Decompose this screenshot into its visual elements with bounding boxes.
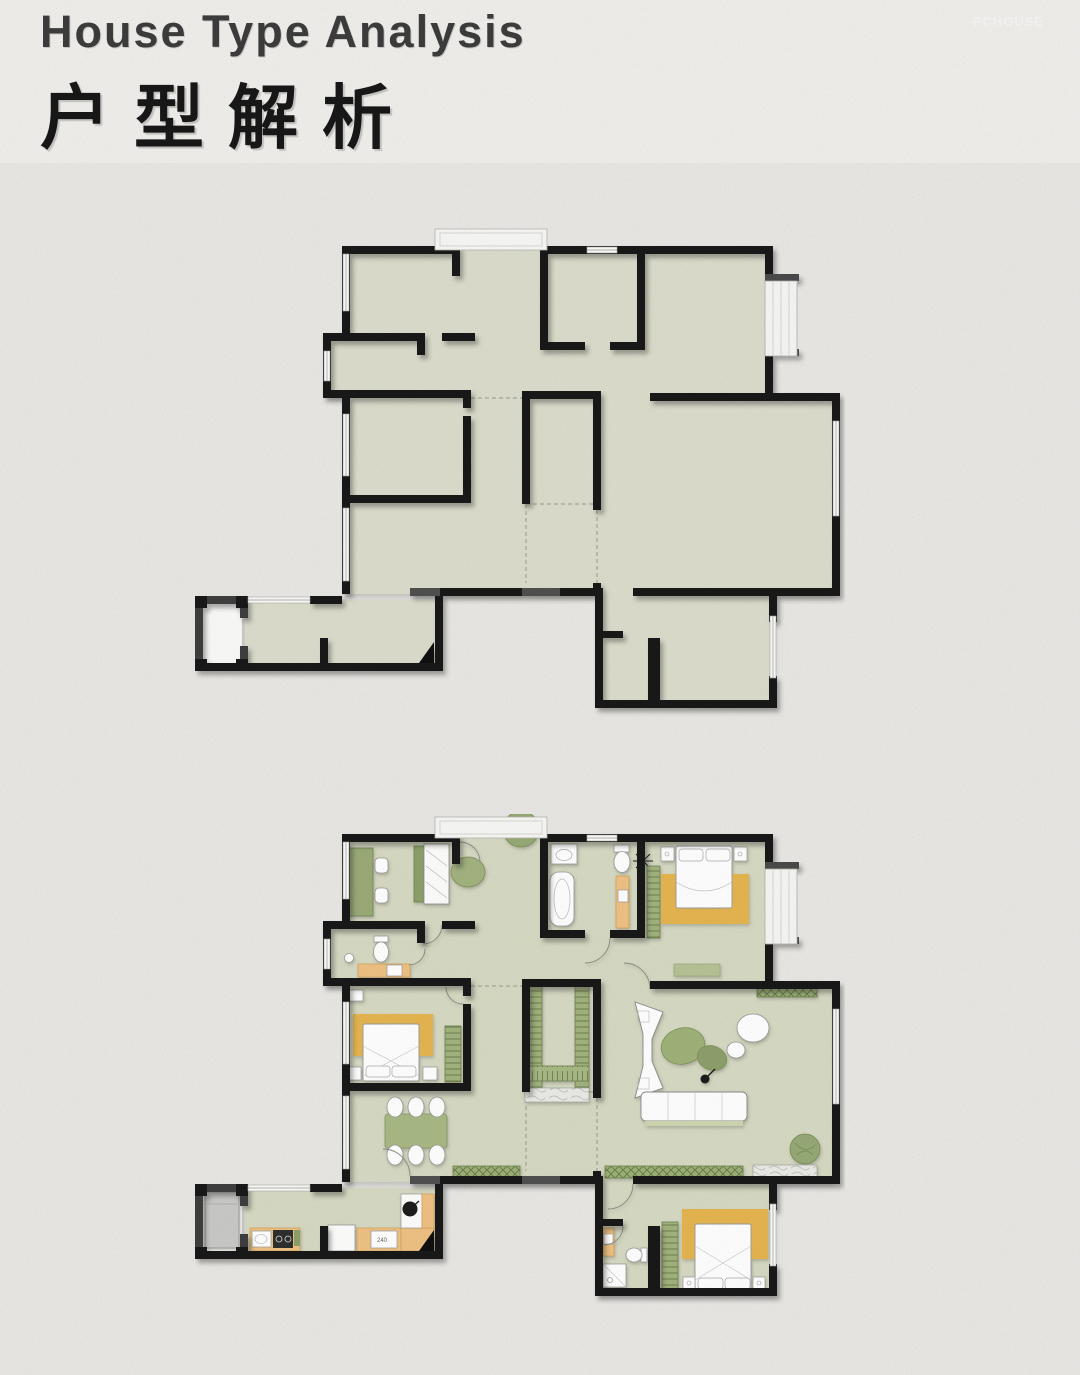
- wall: [442, 333, 475, 341]
- wall: [522, 979, 530, 1092]
- oven-label: 240: [377, 1238, 388, 1244]
- wall: [323, 921, 425, 929]
- wall: [595, 1219, 623, 1226]
- wall: [440, 1176, 522, 1184]
- chair: [408, 1097, 424, 1117]
- wall: [769, 676, 777, 708]
- toilet-tank: [374, 936, 388, 942]
- shelf: [414, 846, 424, 902]
- bench: [674, 964, 720, 976]
- wall: [593, 979, 601, 1098]
- wall: [765, 862, 799, 869]
- nightstand: [423, 1067, 437, 1080]
- wall: [463, 986, 471, 996]
- wall: [323, 333, 425, 341]
- wall: [410, 1176, 440, 1184]
- ottoman: [737, 1014, 769, 1042]
- wall: [633, 588, 743, 596]
- original-floor-plan: [195, 226, 845, 726]
- wall: [769, 1264, 777, 1296]
- nightstand: [753, 1277, 765, 1289]
- sink: [551, 844, 577, 864]
- wall: [417, 333, 425, 355]
- wall: [540, 834, 548, 938]
- toilet-tank: [614, 845, 629, 852]
- wall: [342, 1083, 470, 1091]
- pillow: [392, 1066, 416, 1077]
- floor-corridor: [245, 600, 437, 666]
- wall: [195, 1251, 442, 1259]
- wall: [595, 588, 603, 708]
- wall: [540, 246, 548, 350]
- wall: [633, 1176, 743, 1184]
- wall: [650, 981, 840, 989]
- counter: [422, 1194, 434, 1228]
- page-title-english: House Type Analysis: [40, 6, 526, 58]
- wall: [320, 638, 328, 671]
- sink: [345, 954, 354, 963]
- pillow: [706, 849, 730, 861]
- wall: [650, 393, 840, 401]
- floors: [201, 248, 832, 704]
- wall: [522, 979, 601, 987]
- wall: [648, 1226, 660, 1294]
- bathtub: [550, 872, 574, 926]
- wall: [463, 416, 471, 503]
- sofa-base: [645, 1121, 743, 1126]
- wall: [435, 1184, 443, 1259]
- vanity-sink: [618, 890, 628, 902]
- wall: [593, 391, 601, 510]
- nightstand: [661, 847, 674, 861]
- wall: [743, 1176, 840, 1184]
- pillow: [725, 1278, 750, 1289]
- plant: [790, 1134, 820, 1164]
- wall: [417, 921, 425, 943]
- wall: [320, 1226, 328, 1259]
- toilet: [614, 852, 630, 873]
- nightstand: [683, 1277, 695, 1289]
- wall: [743, 588, 840, 596]
- wall: [522, 391, 601, 399]
- wall: [410, 588, 440, 596]
- chair: [387, 1097, 403, 1117]
- wall: [195, 663, 442, 671]
- refrigerator: [205, 1192, 239, 1248]
- wall: [342, 495, 470, 503]
- balcony: [435, 229, 547, 250]
- wall: [452, 246, 460, 276]
- floor-powder-room: [326, 336, 417, 396]
- floor-bedroom-south: [598, 594, 773, 704]
- ottoman: [727, 1042, 745, 1058]
- wall: [236, 1184, 248, 1196]
- dining-table: [385, 1114, 447, 1148]
- vanity-sink: [387, 965, 402, 976]
- wall: [593, 1171, 601, 1184]
- wall: [545, 834, 773, 842]
- chair: [375, 858, 388, 873]
- pillow: [679, 849, 703, 861]
- wall: [595, 700, 777, 708]
- chair: [429, 1145, 445, 1165]
- furnished-floor-plan: 240: [195, 814, 845, 1314]
- wall: [637, 834, 645, 938]
- wall: [440, 588, 522, 596]
- wall: [595, 1288, 777, 1296]
- watermark: PCHOUSE: [973, 14, 1044, 29]
- wall: [323, 978, 471, 986]
- threshold: [525, 1088, 589, 1102]
- chair: [408, 1145, 424, 1165]
- page: { "page": { "title_en": "House Type Anal…: [0, 0, 1080, 1375]
- wall: [540, 342, 585, 350]
- cutting-board: [294, 1230, 300, 1246]
- desk: [347, 848, 373, 916]
- wall: [452, 834, 460, 864]
- wall: [595, 631, 623, 638]
- pillow: [698, 1278, 723, 1289]
- wall: [442, 921, 475, 929]
- wall: [545, 246, 773, 254]
- page-title-chinese: 户型解析: [40, 62, 416, 163]
- wall: [463, 398, 471, 408]
- balcony: [435, 817, 547, 838]
- toilet: [626, 1248, 642, 1262]
- wall: [540, 930, 585, 938]
- wall: [195, 1184, 207, 1196]
- wardrobe: [445, 1026, 461, 1082]
- toilet: [374, 942, 389, 962]
- wall: [522, 1176, 560, 1184]
- chair: [375, 888, 388, 903]
- wardrobe: [647, 866, 660, 938]
- cabinet: [328, 1225, 355, 1251]
- wall: [435, 596, 443, 671]
- wall: [648, 638, 660, 706]
- vanity-sink: [604, 1234, 613, 1244]
- sofa: [641, 1092, 747, 1121]
- wall: [765, 274, 799, 281]
- wall: [595, 1176, 603, 1296]
- floor-store: [201, 602, 242, 665]
- wall: [195, 596, 207, 608]
- wall: [522, 391, 530, 504]
- wardrobe: [662, 1222, 678, 1290]
- chair: [429, 1097, 445, 1117]
- wall: [323, 390, 471, 398]
- closet-shelf: [527, 1066, 589, 1081]
- wall: [593, 583, 601, 596]
- wall: [236, 596, 248, 608]
- wall: [637, 246, 645, 350]
- pillow: [366, 1066, 390, 1077]
- wall: [310, 1184, 342, 1192]
- nightstand: [734, 847, 747, 861]
- wall: [463, 1004, 471, 1091]
- wall: [310, 596, 342, 604]
- wall: [522, 588, 560, 596]
